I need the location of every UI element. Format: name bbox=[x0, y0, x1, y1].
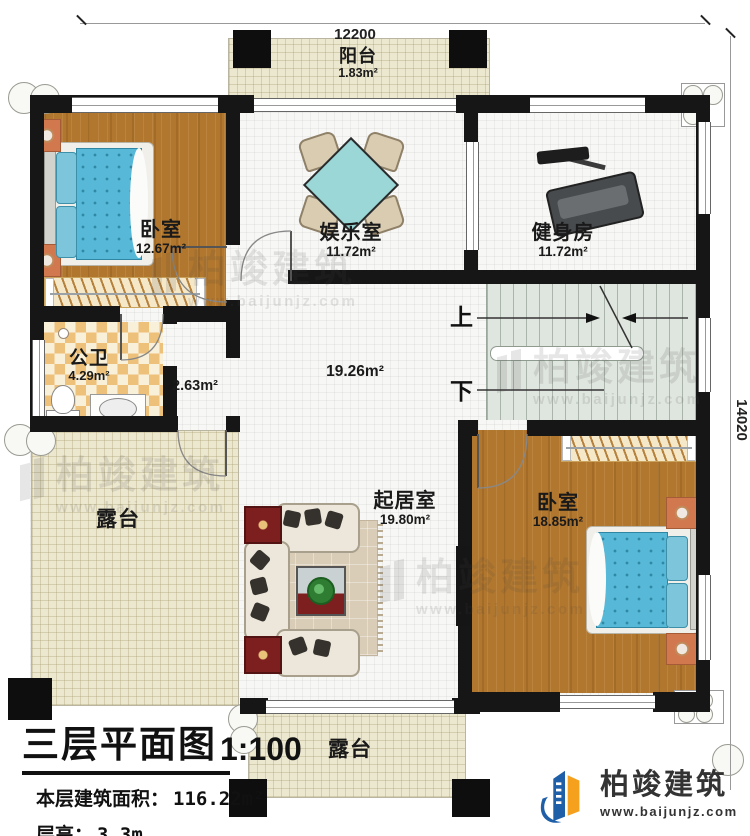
bedroom-top-label: 卧室 12.67m² bbox=[100, 219, 222, 257]
hall-area: 19.26m² bbox=[300, 363, 410, 380]
dimension-line-right bbox=[730, 36, 731, 790]
dimension-height: 14020 bbox=[734, 384, 750, 456]
terrace-left-name: 露台 bbox=[66, 508, 170, 532]
floor-height-label: 层高： bbox=[36, 820, 93, 836]
balcony-label: 阳台 1.83m² bbox=[300, 46, 416, 80]
plan-title: 三层平面图 bbox=[22, 714, 217, 768]
recreation-area: 11.72m² bbox=[291, 244, 411, 259]
bedroom-top-name: 卧室 bbox=[100, 219, 222, 241]
bedroom-bottom-area: 18.85m² bbox=[498, 514, 618, 529]
floor-height-value: 3.3m bbox=[97, 824, 143, 836]
gym-name: 健身房 bbox=[503, 222, 623, 244]
balcony-area: 1.83m² bbox=[300, 66, 416, 80]
gym-area: 11.72m² bbox=[503, 244, 623, 259]
recreation-label: 娱乐室 11.72m² bbox=[291, 222, 411, 260]
dimension-width: 12200 bbox=[300, 26, 410, 43]
living-area: 19.80m² bbox=[345, 512, 465, 527]
bathroom-name: 公卫 bbox=[30, 348, 148, 369]
title-block: 三层平面图 1:100 本层建筑面积： 116.22m² 层高： 3.3m bbox=[22, 714, 302, 836]
living-name: 起居室 bbox=[345, 490, 465, 512]
hallway-area-label: 2.63m² bbox=[158, 378, 232, 394]
floor-area-label: 本层建筑面积： bbox=[36, 784, 169, 811]
gym-label: 健身房 11.72m² bbox=[503, 222, 623, 260]
recreation-name: 娱乐室 bbox=[291, 222, 411, 244]
bedroom-bottom-name: 卧室 bbox=[498, 492, 618, 514]
brand-url: www.baijunjz.com bbox=[600, 804, 738, 819]
terrace-left-label: 露台 bbox=[66, 508, 170, 532]
plan-scale: 1:100 bbox=[220, 731, 302, 768]
balcony-name: 阳台 bbox=[300, 46, 416, 66]
brand-logo-icon bbox=[538, 764, 592, 826]
floor-area-value: 116.22m² bbox=[173, 788, 265, 810]
dimension-line-top bbox=[80, 23, 705, 24]
hall-area-label: 19.26m² bbox=[300, 363, 410, 380]
bedroom-top-area: 12.67m² bbox=[100, 241, 222, 256]
stairs-up-label: 上 bbox=[450, 298, 473, 332]
terrace-bottom-label: 露台 bbox=[308, 738, 392, 762]
terrace-bottom-name: 露台 bbox=[308, 738, 392, 762]
plan-annotations bbox=[0, 0, 750, 836]
hallway-area: 2.63m² bbox=[158, 378, 232, 394]
floor-plan: 阳台 1.83m² 卧室 12.67m² 娱乐室 11.72m² 健身房 11.… bbox=[0, 0, 750, 836]
bathroom-area: 4.29m² bbox=[30, 369, 148, 384]
bathroom-label: 公卫 4.29m² bbox=[30, 348, 148, 384]
brand-logo: 柏竣建筑 www.baijunjz.com bbox=[538, 764, 738, 826]
title-underline bbox=[22, 771, 230, 775]
brand-name: 柏竣建筑 bbox=[600, 771, 738, 800]
stairs-down-label: 下 bbox=[450, 372, 473, 406]
bedroom-bottom-label: 卧室 18.85m² bbox=[498, 492, 618, 530]
living-label: 起居室 19.80m² bbox=[345, 490, 465, 528]
